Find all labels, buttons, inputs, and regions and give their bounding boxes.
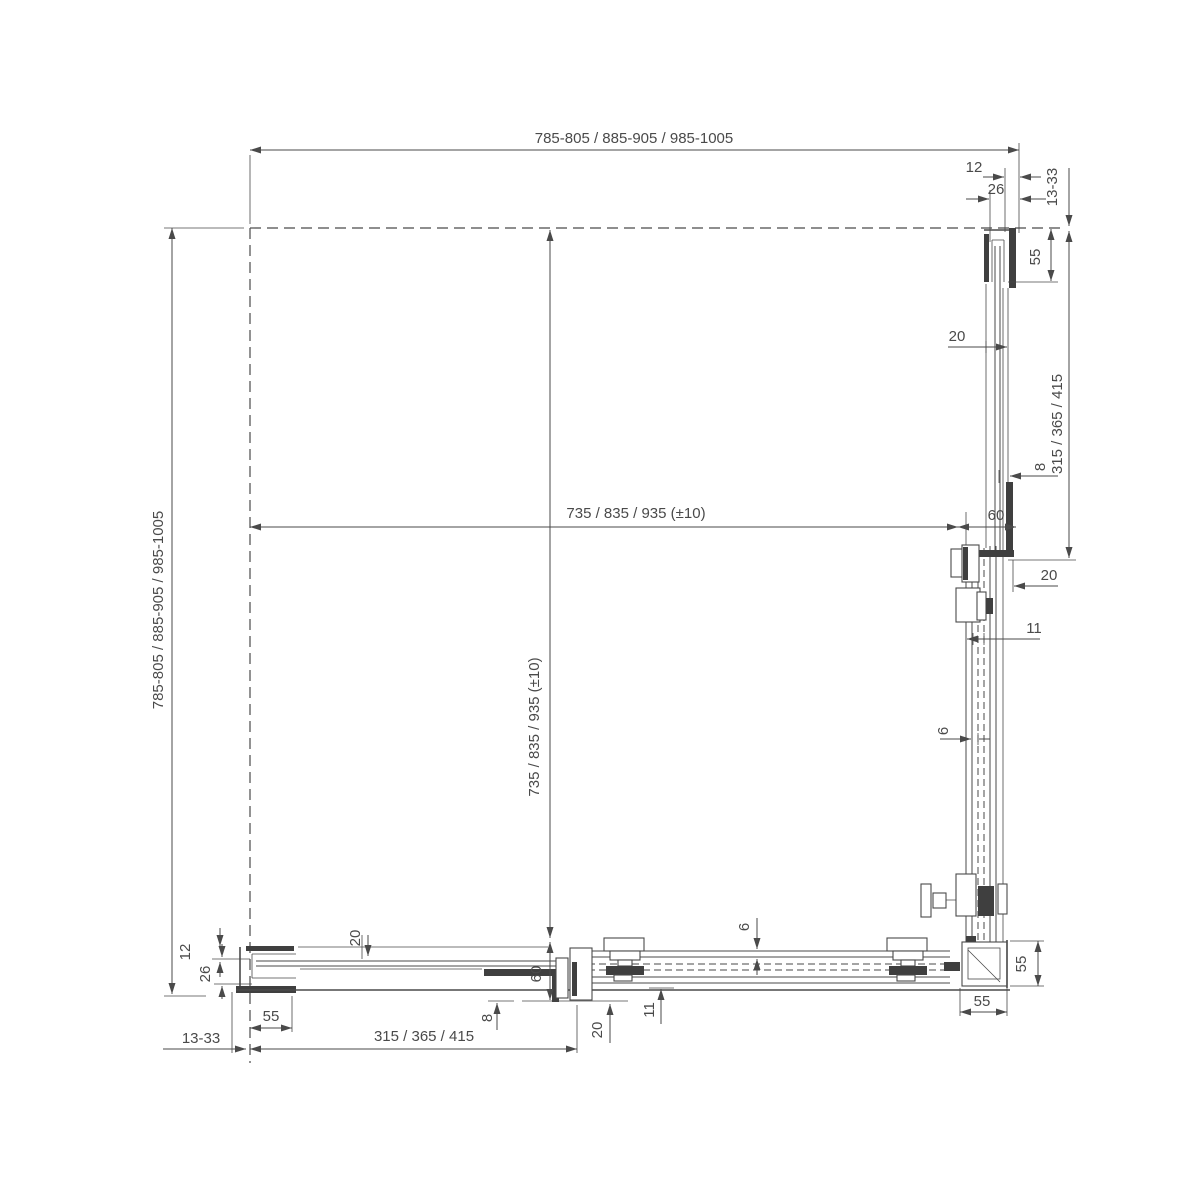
- right-8-label: 8: [1032, 463, 1049, 471]
- right-11-label: 11: [1026, 620, 1042, 637]
- overall-depth-label: 785-805 / 885-905 / 985-1005: [150, 511, 167, 710]
- corner-post: [962, 940, 1007, 988]
- bottom-door-roller-left: [604, 938, 644, 981]
- right-20-label: 20: [949, 328, 966, 345]
- bottom-11-label: 11: [641, 1002, 658, 1018]
- overall-depth-dimension: 785-805 / 885-905 / 985-1005: [150, 228, 244, 996]
- right-dimension-cluster: 12 26 13-33 55 20 315 / 365 / 415 8 60 2…: [935, 159, 1076, 745]
- shower-enclosure-plan: 785-805 / 885-905 / 985-1005 785-805 / 8…: [0, 0, 1200, 1200]
- bottom-26-label: 26: [197, 966, 214, 983]
- bottom-door-end-block: [944, 962, 960, 971]
- bottom-adjustment-label: 13-33: [182, 1030, 220, 1047]
- right-6-label: 6: [935, 727, 952, 735]
- inner-width-label: 735 / 835 / 935 (±10): [566, 505, 705, 522]
- inner-depth-label: 735 / 835 / 935 (±10): [526, 657, 543, 796]
- bottom-glass-clamp: [556, 948, 592, 1000]
- bottom-dimension-cluster: 12 26 55 13-33 315 / 365 / 415 8 20 60 2…: [163, 918, 757, 1053]
- right-12-label: 12: [966, 159, 983, 176]
- bottom-wall-profile: [236, 946, 296, 993]
- corner-55-horizontal-label: 55: [974, 993, 991, 1010]
- overall-width-dimension: 785-805 / 885-905 / 985-1005: [250, 130, 1019, 233]
- corner-55-vertical-label: 55: [1013, 956, 1030, 973]
- right-profile-55-label: 55: [1027, 249, 1044, 266]
- inner-width-dimension: 735 / 835 / 935 (±10): [250, 505, 966, 546]
- right-adjustment-label: 13-33: [1044, 168, 1061, 206]
- right-glass-end-bar: [974, 550, 1014, 557]
- bottom-glass-seal: [484, 969, 556, 976]
- right-sliding-door: [921, 545, 1014, 952]
- bottom-door-roller-right: [887, 938, 927, 981]
- right-door-bottom-roller: [921, 874, 1007, 917]
- right-glass-seal: [1006, 482, 1013, 556]
- right-door-20-label: 20: [1041, 567, 1058, 584]
- right-60-label: 60: [988, 507, 1005, 524]
- inner-depth-dimension: 735 / 835 / 935 (±10): [526, 230, 550, 938]
- overall-width-label: 785-805 / 885-905 / 985-1005: [535, 130, 734, 147]
- bottom-12-label: 12: [177, 944, 194, 961]
- right-door-guide-roller: [956, 588, 993, 622]
- right-glass-clamp: [951, 545, 979, 582]
- bottom-door-20-label: 20: [589, 1022, 606, 1039]
- bottom-60-label: 60: [528, 966, 545, 983]
- construction-lines: [250, 228, 1063, 1063]
- bottom-profile-55-label: 55: [263, 1008, 280, 1025]
- right-26-label: 26: [988, 181, 1005, 198]
- right-fixed-length-label: 315 / 365 / 415: [1049, 374, 1066, 474]
- bottom-fixed-length-label: 315 / 365 / 415: [374, 1028, 474, 1045]
- bottom-8-label: 8: [479, 1014, 496, 1022]
- bottom-sliding-door: [552, 938, 960, 1002]
- bottom-20-label: 20: [347, 930, 364, 947]
- technical-drawing-canvas: 785-805 / 885-905 / 985-1005 785-805 / 8…: [0, 0, 1200, 1200]
- bottom-6-label: 6: [736, 923, 753, 931]
